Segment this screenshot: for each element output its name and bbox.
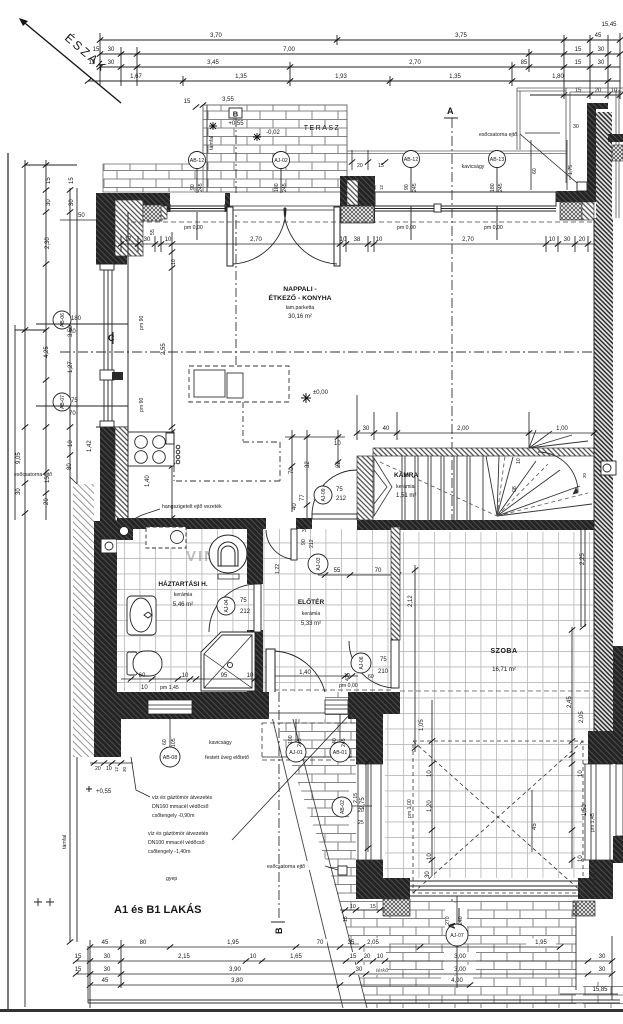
svg-text:40: 40 <box>292 503 298 510</box>
svg-text:DN100 mmacél védőcső: DN100 mmacél védőcső <box>148 840 205 846</box>
svg-text:10: 10 <box>427 770 433 777</box>
svg-text:1,22: 1,22 <box>275 564 281 574</box>
svg-text:AB-12: AB-12 <box>404 157 419 163</box>
svg-text:térkő: térkő <box>376 968 389 974</box>
svg-text:30: 30 <box>356 967 363 973</box>
svg-text:245: 245 <box>198 183 204 192</box>
svg-text:1,27: 1,27 <box>68 361 74 373</box>
svg-text:35: 35 <box>348 940 355 946</box>
svg-text:75: 75 <box>71 398 78 404</box>
svg-text:212: 212 <box>309 539 315 548</box>
svg-text:60: 60 <box>162 739 168 745</box>
svg-text:AB-06: AB-06 <box>60 313 66 327</box>
svg-text:45: 45 <box>102 978 109 984</box>
svg-text:2,15: 2,15 <box>353 793 359 803</box>
svg-text:30,16 m²: 30,16 m² <box>288 314 312 320</box>
svg-text:20: 20 <box>595 88 602 94</box>
svg-text:2,70: 2,70 <box>409 60 421 66</box>
svg-text:lam.parketta: lam.parketta <box>286 305 315 311</box>
svg-text:1,75: 1,75 <box>568 165 574 175</box>
svg-text:38: 38 <box>354 237 361 243</box>
svg-text:AB-01: AB-01 <box>333 750 348 756</box>
svg-text:105: 105 <box>171 738 177 747</box>
svg-text:kerámia: kerámia <box>302 611 321 617</box>
svg-text:1,42: 1,42 <box>87 440 93 452</box>
svg-text:10: 10 <box>427 853 433 860</box>
svg-text:85: 85 <box>521 60 528 66</box>
svg-text:3,75: 3,75 <box>455 33 467 39</box>
svg-text:gyep: gyep <box>166 876 177 882</box>
svg-text:KAMRA: KAMRA <box>394 472 418 479</box>
svg-text:2,05: 2,05 <box>367 940 379 946</box>
svg-text:10: 10 <box>340 237 347 243</box>
svg-text:70: 70 <box>289 467 295 474</box>
svg-text:HÁZTARTÁSI H.: HÁZTARTÁSI H. <box>158 579 208 588</box>
svg-text:30: 30 <box>302 526 308 532</box>
svg-text:90: 90 <box>301 539 307 545</box>
svg-text:45: 45 <box>532 823 538 830</box>
svg-text:15: 15 <box>184 99 191 105</box>
svg-text:2,45: 2,45 <box>567 696 573 708</box>
svg-text:15: 15 <box>350 954 357 960</box>
svg-text:30: 30 <box>564 237 571 243</box>
svg-text:15: 15 <box>343 916 349 922</box>
svg-text:212: 212 <box>336 496 347 502</box>
svg-text:SZOBA: SZOBA <box>491 648 518 655</box>
svg-text:20: 20 <box>44 498 50 505</box>
svg-text:pm 90: pm 90 <box>139 397 145 412</box>
svg-text:2,75: 2,75 <box>360 797 366 809</box>
svg-text:1,80: 1,80 <box>552 74 564 80</box>
svg-text:20: 20 <box>582 472 587 478</box>
svg-text:1,50: 1,50 <box>582 804 588 816</box>
svg-text:1,95: 1,95 <box>227 940 239 946</box>
svg-text:3,80: 3,80 <box>231 978 243 984</box>
svg-text:70: 70 <box>317 940 324 946</box>
svg-text:15: 15 <box>370 904 376 910</box>
svg-text:60: 60 <box>368 674 374 680</box>
svg-text:20: 20 <box>95 766 101 772</box>
svg-text:1,20: 1,20 <box>427 800 433 812</box>
svg-text:55: 55 <box>150 229 156 235</box>
svg-text:B: B <box>233 110 239 119</box>
svg-text:1,40: 1,40 <box>299 670 311 676</box>
svg-text:A1 és B1 LAKÁS: A1 és B1 LAKÁS <box>114 903 201 916</box>
svg-text:AJ-02: AJ-02 <box>274 158 288 164</box>
svg-text:15: 15 <box>575 88 582 94</box>
svg-text:25: 25 <box>358 820 364 826</box>
svg-text:víz és gáztömör átvezetés: víz és gáztömör átvezetés <box>148 831 209 837</box>
svg-text:60: 60 <box>139 673 146 679</box>
svg-text:20: 20 <box>364 954 371 960</box>
svg-text:3,45: 3,45 <box>207 60 219 66</box>
svg-text:212: 212 <box>240 609 251 615</box>
svg-text:AB-07: AB-07 <box>60 395 66 409</box>
svg-text:90: 90 <box>190 184 196 190</box>
svg-text:10: 10 <box>377 954 384 960</box>
svg-text:AJ-03: AJ-03 <box>316 557 322 570</box>
svg-text:15: 15 <box>46 177 52 184</box>
svg-text:15: 15 <box>69 177 75 184</box>
svg-text:30: 30 <box>108 47 115 53</box>
svg-text:10: 10 <box>171 259 177 265</box>
svg-text:77: 77 <box>300 494 306 501</box>
svg-text:AJ-04: AJ-04 <box>224 599 230 612</box>
svg-text:245: 245 <box>341 738 347 747</box>
svg-text:DN160 mmacél védőcső: DN160 mmacél védőcső <box>152 804 209 810</box>
svg-text:95: 95 <box>221 673 228 679</box>
svg-text:15: 15 <box>575 60 582 66</box>
svg-text:2,70: 2,70 <box>462 237 474 243</box>
svg-text:pm 1,45: pm 1,45 <box>160 685 179 691</box>
svg-text:3,00: 3,00 <box>454 954 466 960</box>
svg-text:12: 12 <box>379 184 384 190</box>
svg-text:30: 30 <box>122 766 127 772</box>
svg-text:22: 22 <box>336 461 342 468</box>
svg-text:ÉTKEZŐ - KONYHA: ÉTKEZŐ - KONYHA <box>268 293 331 302</box>
svg-text:1,00: 1,00 <box>556 426 568 432</box>
svg-text:30: 30 <box>69 199 75 206</box>
svg-text:kerámia: kerámia <box>396 484 415 490</box>
svg-text:70: 70 <box>69 411 76 417</box>
svg-text:1,35: 1,35 <box>235 74 247 80</box>
svg-text:2,00: 2,00 <box>457 426 469 432</box>
svg-text:20: 20 <box>579 237 586 243</box>
svg-text:30: 30 <box>104 967 111 973</box>
svg-text:pm 0,00: pm 0,00 <box>397 225 416 231</box>
svg-text:15: 15 <box>89 60 96 66</box>
svg-text:45: 45 <box>595 33 602 39</box>
svg-text:245: 245 <box>412 183 418 192</box>
svg-text:kavicságy: kavicságy <box>462 164 485 170</box>
svg-text:3,00: 3,00 <box>454 967 466 973</box>
svg-text:180: 180 <box>274 183 280 192</box>
svg-text:10: 10 <box>141 685 148 691</box>
svg-text:hangszigetelt ejtő vezeték: hangszigetelt ejtő vezeték <box>162 504 222 510</box>
svg-text:30: 30 <box>599 954 606 960</box>
svg-text:pm 0,00: pm 0,00 <box>184 225 203 231</box>
svg-text:10: 10 <box>516 458 522 464</box>
svg-text:1,51 m²: 1,51 m² <box>396 493 416 499</box>
svg-text:víz és gáztömör átvezetés: víz és gáztömör átvezetés <box>152 795 213 801</box>
svg-text:1,65: 1,65 <box>290 954 302 960</box>
svg-text:2,12: 2,12 <box>408 595 414 607</box>
svg-text:3,70: 3,70 <box>210 33 222 39</box>
svg-text:4,25: 4,25 <box>44 346 50 358</box>
svg-text:15: 15 <box>93 47 100 53</box>
svg-text:5,33 m²: 5,33 m² <box>301 621 321 627</box>
svg-text:55: 55 <box>334 568 341 574</box>
svg-text:10: 10 <box>182 673 189 679</box>
svg-text:1,35: 1,35 <box>449 74 461 80</box>
svg-text:30: 30 <box>108 60 115 66</box>
svg-text:10: 10 <box>578 770 584 777</box>
svg-text:esőcsatorna ejtő: esőcsatorna ejtő <box>479 132 517 138</box>
svg-text:30: 30 <box>425 871 431 878</box>
svg-text:AJ-07: AJ-07 <box>450 933 464 939</box>
svg-text:30: 30 <box>16 488 22 495</box>
svg-text:NAPPALI -: NAPPALI - <box>283 286 316 293</box>
svg-text:A: A <box>447 106 454 116</box>
svg-text:A: A <box>447 922 457 929</box>
svg-text:80: 80 <box>140 940 147 946</box>
svg-text:±0,00: ±0,00 <box>313 390 329 396</box>
svg-text:20: 20 <box>357 163 363 169</box>
svg-text:100: 100 <box>288 735 294 744</box>
svg-text:210: 210 <box>378 669 389 675</box>
svg-text:15: 15 <box>75 967 82 973</box>
svg-text:180: 180 <box>490 183 496 192</box>
svg-text:60: 60 <box>532 168 538 174</box>
svg-text:30: 30 <box>104 954 111 960</box>
svg-text:támfal: támfal <box>209 136 215 150</box>
svg-text:10: 10 <box>549 237 556 243</box>
svg-text:30: 30 <box>598 60 605 66</box>
svg-text:75: 75 <box>380 657 387 663</box>
svg-text:AB-08: AB-08 <box>163 755 178 761</box>
svg-text:7,00: 7,00 <box>283 47 295 53</box>
svg-text:45: 45 <box>102 940 109 946</box>
svg-text:1,93: 1,93 <box>335 74 347 80</box>
svg-text:75: 75 <box>336 487 343 493</box>
svg-text:kavicságy: kavicságy <box>209 740 232 746</box>
svg-text:30: 30 <box>573 124 579 130</box>
svg-text:csőtengely -0,90m: csőtengely -0,90m <box>152 813 194 819</box>
svg-text:+0,55: +0,55 <box>96 789 112 795</box>
svg-text:10: 10 <box>376 237 383 243</box>
svg-text:esőcsatorna ejtő: esőcsatorna ejtő <box>267 864 305 870</box>
svg-text:2,05: 2,05 <box>579 711 585 723</box>
svg-text:32: 32 <box>305 461 311 468</box>
svg-text:90: 90 <box>404 184 410 190</box>
svg-text:pm 0,00: pm 0,00 <box>339 683 358 689</box>
svg-text:1,67: 1,67 <box>130 74 142 80</box>
svg-text:10: 10 <box>247 673 254 679</box>
svg-text:10: 10 <box>250 954 257 960</box>
svg-text:pm 1,00: pm 1,00 <box>407 799 413 818</box>
svg-text:B: B <box>274 927 284 934</box>
svg-text:csőtengely -1,40m: csőtengely -1,40m <box>148 849 190 855</box>
svg-text:AB-02: AB-02 <box>340 800 346 814</box>
svg-text:15: 15 <box>575 47 582 53</box>
svg-text:pm 1,45: pm 1,45 <box>590 813 596 832</box>
svg-text:10: 10 <box>106 766 112 772</box>
svg-text:50: 50 <box>78 213 85 219</box>
svg-text:15: 15 <box>75 954 82 960</box>
svg-text:pm 0,00: pm 0,00 <box>484 225 503 231</box>
svg-text:75: 75 <box>240 598 247 604</box>
svg-text:245: 245 <box>498 183 504 192</box>
svg-text:30: 30 <box>144 237 151 243</box>
svg-text:AB-12: AB-12 <box>190 158 205 164</box>
svg-text:pm 90: pm 90 <box>139 315 145 330</box>
svg-text:10: 10 <box>68 440 74 447</box>
svg-text:40: 40 <box>383 426 390 432</box>
svg-text:-0,02: -0,02 <box>266 130 280 136</box>
svg-text:9,05: 9,05 <box>16 452 22 464</box>
svg-text:kerámia: kerámia <box>174 592 193 598</box>
svg-text:5,46 m²: 5,46 m² <box>173 602 193 608</box>
svg-text:40: 40 <box>332 738 338 744</box>
svg-text:2,70: 2,70 <box>250 237 262 243</box>
svg-text:10: 10 <box>611 88 618 94</box>
svg-text:festett üveg előtető: festett üveg előtető <box>205 755 249 761</box>
svg-text:3,55: 3,55 <box>222 97 234 103</box>
svg-text:15,45: 15,45 <box>601 22 617 28</box>
svg-text:80: 80 <box>67 463 73 470</box>
svg-text:15,85: 15,85 <box>592 987 608 993</box>
svg-text:2,30: 2,30 <box>45 237 51 249</box>
svg-text:2,55: 2,55 <box>161 343 167 355</box>
svg-text:AJ-01: AJ-01 <box>289 750 303 756</box>
svg-text:1,40: 1,40 <box>145 475 151 487</box>
svg-text:3,90: 3,90 <box>229 967 241 973</box>
svg-text:70: 70 <box>375 568 382 574</box>
svg-text:70: 70 <box>69 329 76 335</box>
svg-text:245: 245 <box>297 738 303 747</box>
svg-text:180: 180 <box>71 316 82 322</box>
svg-text:C: C <box>108 333 115 343</box>
svg-text:08: 08 <box>512 486 518 492</box>
svg-text:16,71 m²: 16,71 m² <box>492 667 516 673</box>
svg-text:10: 10 <box>578 855 584 862</box>
svg-text:esőcsatorna ejtő: esőcsatorna ejtő <box>14 472 52 478</box>
svg-text:AJ-09: AJ-09 <box>321 488 327 501</box>
svg-text:30: 30 <box>46 199 52 206</box>
svg-text:30: 30 <box>363 426 370 432</box>
svg-text:30: 30 <box>599 967 606 973</box>
svg-text:TERASZ: TERASZ <box>304 125 341 132</box>
svg-text:10: 10 <box>334 441 341 447</box>
svg-text:12: 12 <box>114 766 119 772</box>
svg-text:AJ-06: AJ-06 <box>359 656 365 669</box>
svg-text:1,05: 1,05 <box>419 719 425 731</box>
svg-text:ELŐTÉR: ELŐTÉR <box>298 597 325 606</box>
svg-text:10: 10 <box>350 904 356 910</box>
svg-text:245: 245 <box>282 183 288 192</box>
svg-text:AB-13: AB-13 <box>490 157 505 163</box>
svg-text:30: 30 <box>598 47 605 53</box>
svg-text:10: 10 <box>165 237 172 243</box>
svg-text:2,15: 2,15 <box>178 954 190 960</box>
svg-text:1,95: 1,95 <box>535 940 547 946</box>
svg-text:támfal: támfal <box>62 835 68 849</box>
